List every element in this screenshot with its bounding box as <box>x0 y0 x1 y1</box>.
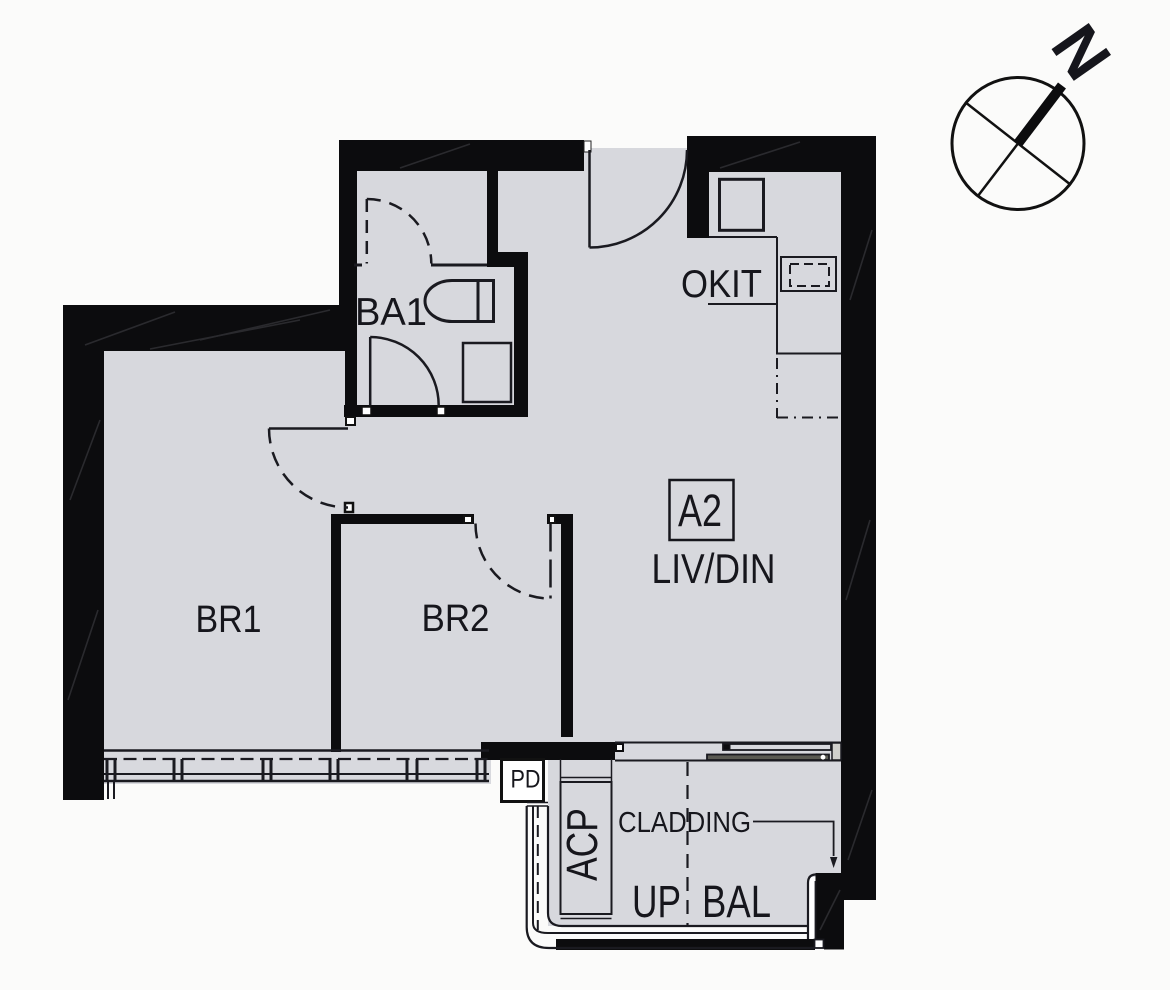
svg-text:BR2: BR2 <box>422 598 490 640</box>
svg-text:ACP: ACP <box>558 808 607 881</box>
svg-text:BR1: BR1 <box>196 599 262 641</box>
svg-text:BA1: BA1 <box>355 291 427 334</box>
svg-text:UP: UP <box>632 876 681 927</box>
svg-text:PD: PD <box>511 766 541 794</box>
svg-text:LIV/DIN: LIV/DIN <box>652 545 776 592</box>
svg-text:A2: A2 <box>678 485 722 536</box>
svg-text:OKIT: OKIT <box>681 263 762 306</box>
svg-text:BAL: BAL <box>702 876 771 927</box>
svg-text:CLADDING: CLADDING <box>618 807 751 839</box>
